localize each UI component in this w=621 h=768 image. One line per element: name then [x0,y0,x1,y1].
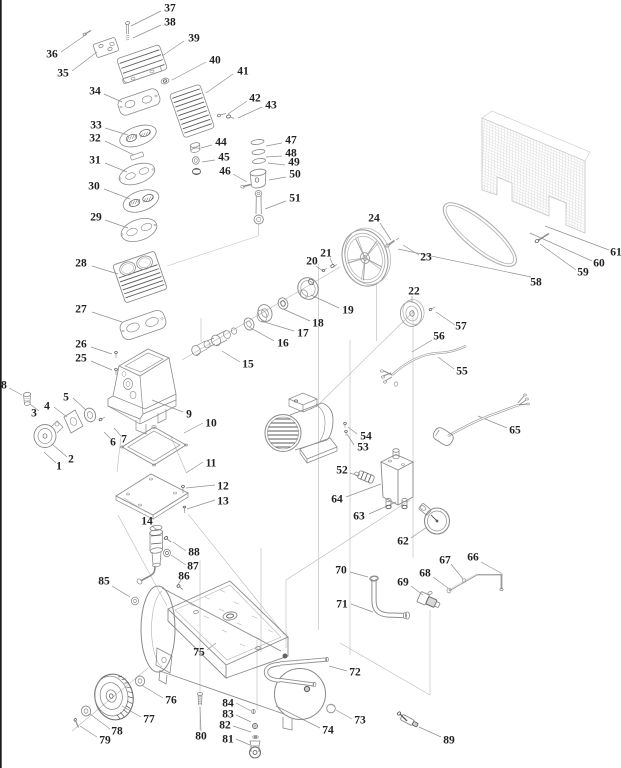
svg-text:4: 4 [44,401,50,413]
svg-text:19: 19 [342,305,354,317]
svg-text:54: 54 [360,431,372,443]
svg-text:78: 78 [111,726,123,738]
svg-text:65: 65 [509,425,521,437]
svg-text:67: 67 [439,555,451,567]
svg-text:66: 66 [467,552,479,564]
svg-text:46: 46 [219,166,231,178]
svg-text:55: 55 [456,366,468,378]
svg-text:53: 53 [357,442,369,454]
svg-text:36: 36 [46,49,58,61]
svg-text:75: 75 [193,647,205,659]
svg-text:56: 56 [433,331,445,343]
svg-text:60: 60 [593,258,605,270]
svg-text:71: 71 [336,599,348,611]
svg-text:13: 13 [217,496,229,508]
svg-text:23: 23 [420,252,432,264]
svg-text:77: 77 [143,714,155,726]
svg-text:33: 33 [90,120,102,132]
svg-text:7: 7 [121,434,127,446]
svg-text:20: 20 [306,256,318,268]
svg-text:51: 51 [289,193,301,205]
svg-text:39: 39 [188,33,200,45]
svg-text:52: 52 [336,465,348,477]
svg-text:43: 43 [265,100,277,112]
svg-text:70: 70 [335,565,347,577]
svg-text:17: 17 [297,328,309,340]
svg-text:5: 5 [63,392,69,404]
svg-text:2: 2 [68,454,74,466]
svg-text:29: 29 [90,212,102,224]
svg-text:22: 22 [408,286,420,298]
svg-text:50: 50 [289,169,301,181]
svg-text:62: 62 [397,536,409,548]
svg-text:27: 27 [75,304,87,316]
svg-text:49: 49 [288,157,300,169]
svg-text:58: 58 [530,277,542,289]
svg-text:82: 82 [219,720,231,732]
svg-text:18: 18 [312,318,324,330]
svg-text:68: 68 [419,568,431,580]
svg-text:24: 24 [368,213,380,225]
svg-text:38: 38 [164,17,176,29]
svg-text:31: 31 [89,155,101,167]
svg-text:34: 34 [89,86,101,98]
svg-text:57: 57 [455,321,467,333]
svg-text:69: 69 [397,577,409,589]
svg-text:76: 76 [165,695,177,707]
svg-text:73: 73 [354,715,366,727]
svg-text:79: 79 [99,735,111,747]
svg-text:83: 83 [222,709,234,721]
svg-text:59: 59 [577,267,589,279]
svg-text:72: 72 [349,667,361,679]
svg-text:37: 37 [164,3,176,15]
svg-text:40: 40 [209,55,221,67]
svg-text:26: 26 [75,339,87,351]
svg-text:81: 81 [222,734,234,746]
svg-text:85: 85 [98,576,110,588]
svg-text:21: 21 [320,248,332,260]
svg-text:89: 89 [443,735,455,747]
svg-text:32: 32 [89,133,101,145]
svg-text:11: 11 [206,458,217,470]
svg-text:41: 41 [237,66,249,78]
svg-text:6: 6 [110,437,116,449]
svg-text:1: 1 [56,461,62,473]
svg-text:80: 80 [195,731,207,743]
svg-text:74: 74 [322,725,334,737]
svg-text:44: 44 [215,137,227,149]
svg-text:61: 61 [610,247,621,259]
svg-text:87: 87 [187,561,199,573]
svg-text:12: 12 [217,481,229,493]
svg-text:28: 28 [75,258,87,270]
svg-text:42: 42 [249,93,261,105]
svg-text:84: 84 [222,698,234,710]
svg-text:30: 30 [88,181,100,193]
svg-text:25: 25 [75,353,87,365]
svg-text:14: 14 [141,516,153,528]
svg-text:47: 47 [285,135,297,147]
svg-text:35: 35 [57,68,69,80]
svg-text:8: 8 [1,380,7,392]
svg-text:16: 16 [277,338,289,350]
svg-text:15: 15 [242,359,254,371]
svg-text:63: 63 [353,511,365,523]
svg-text:45: 45 [218,152,230,164]
svg-text:88: 88 [188,547,200,559]
svg-text:64: 64 [331,494,343,506]
svg-text:10: 10 [205,418,217,430]
svg-text:3: 3 [31,408,37,420]
svg-text:9: 9 [186,409,192,421]
